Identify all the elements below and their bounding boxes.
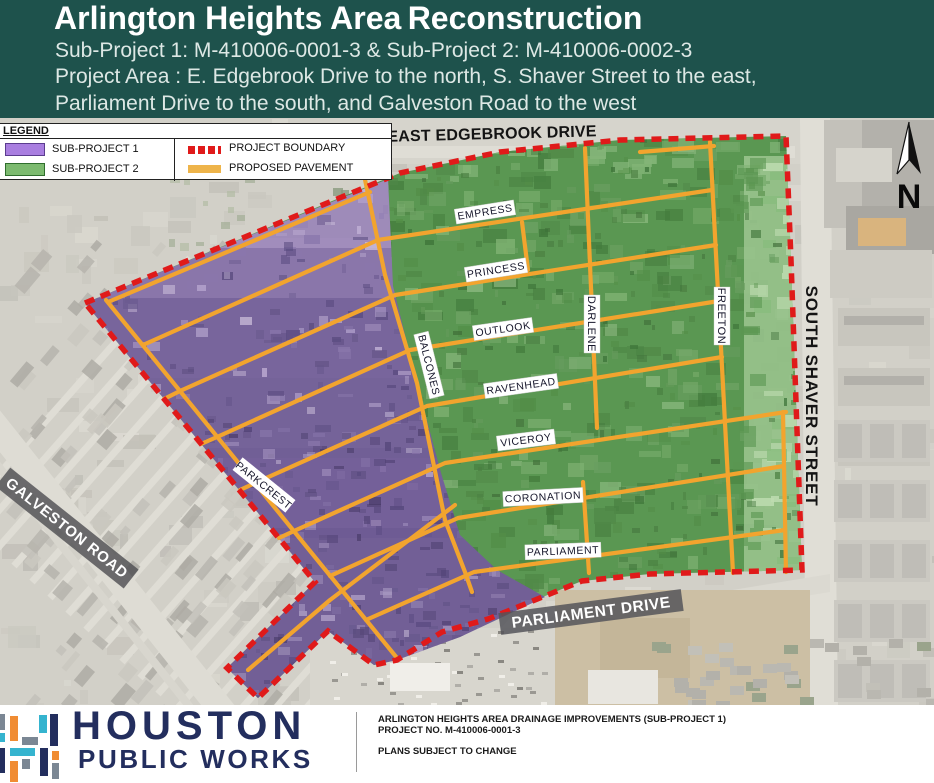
svg-text:FREETON: FREETON — [715, 288, 727, 345]
svg-text:SOUTH SHAVER STREET: SOUTH SHAVER STREET — [802, 286, 821, 507]
svg-text:PARLIAMENT: PARLIAMENT — [527, 544, 600, 559]
svg-text:DARLENE: DARLENE — [585, 296, 597, 352]
svg-text:N: N — [897, 178, 922, 216]
